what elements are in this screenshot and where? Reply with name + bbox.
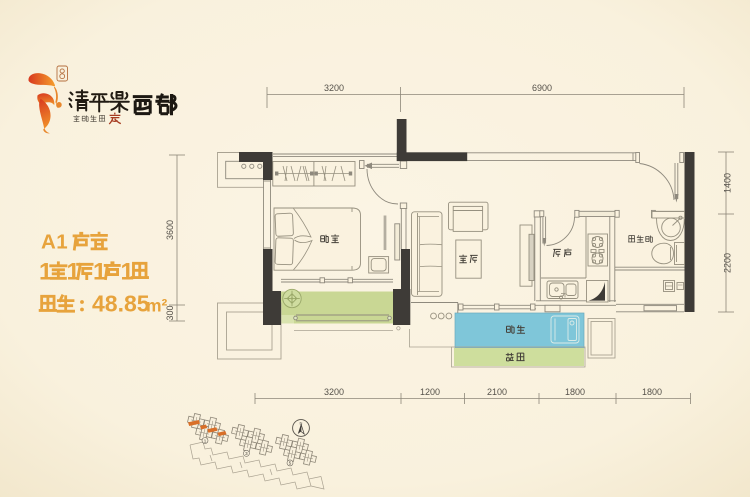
svg-text:1200: 1200 bbox=[420, 387, 440, 397]
svg-text:1: 1 bbox=[121, 259, 134, 286]
svg-text:3200: 3200 bbox=[324, 83, 344, 93]
svg-text:3200: 3200 bbox=[324, 387, 344, 397]
svg-text:2100: 2100 bbox=[487, 387, 507, 397]
svg-text:6900: 6900 bbox=[532, 83, 552, 93]
svg-text:1: 1 bbox=[93, 259, 106, 286]
svg-text:1800: 1800 bbox=[642, 387, 662, 397]
svg-text:A1: A1 bbox=[41, 231, 68, 254]
svg-text:m²: m² bbox=[146, 296, 168, 316]
svg-text:48.85: 48.85 bbox=[92, 291, 150, 317]
svg-text:3600: 3600 bbox=[165, 220, 175, 240]
svg-text:1: 1 bbox=[39, 259, 52, 286]
svg-text:1400: 1400 bbox=[723, 173, 733, 193]
svg-text:1800: 1800 bbox=[565, 387, 585, 397]
svg-text:2200: 2200 bbox=[723, 253, 733, 273]
